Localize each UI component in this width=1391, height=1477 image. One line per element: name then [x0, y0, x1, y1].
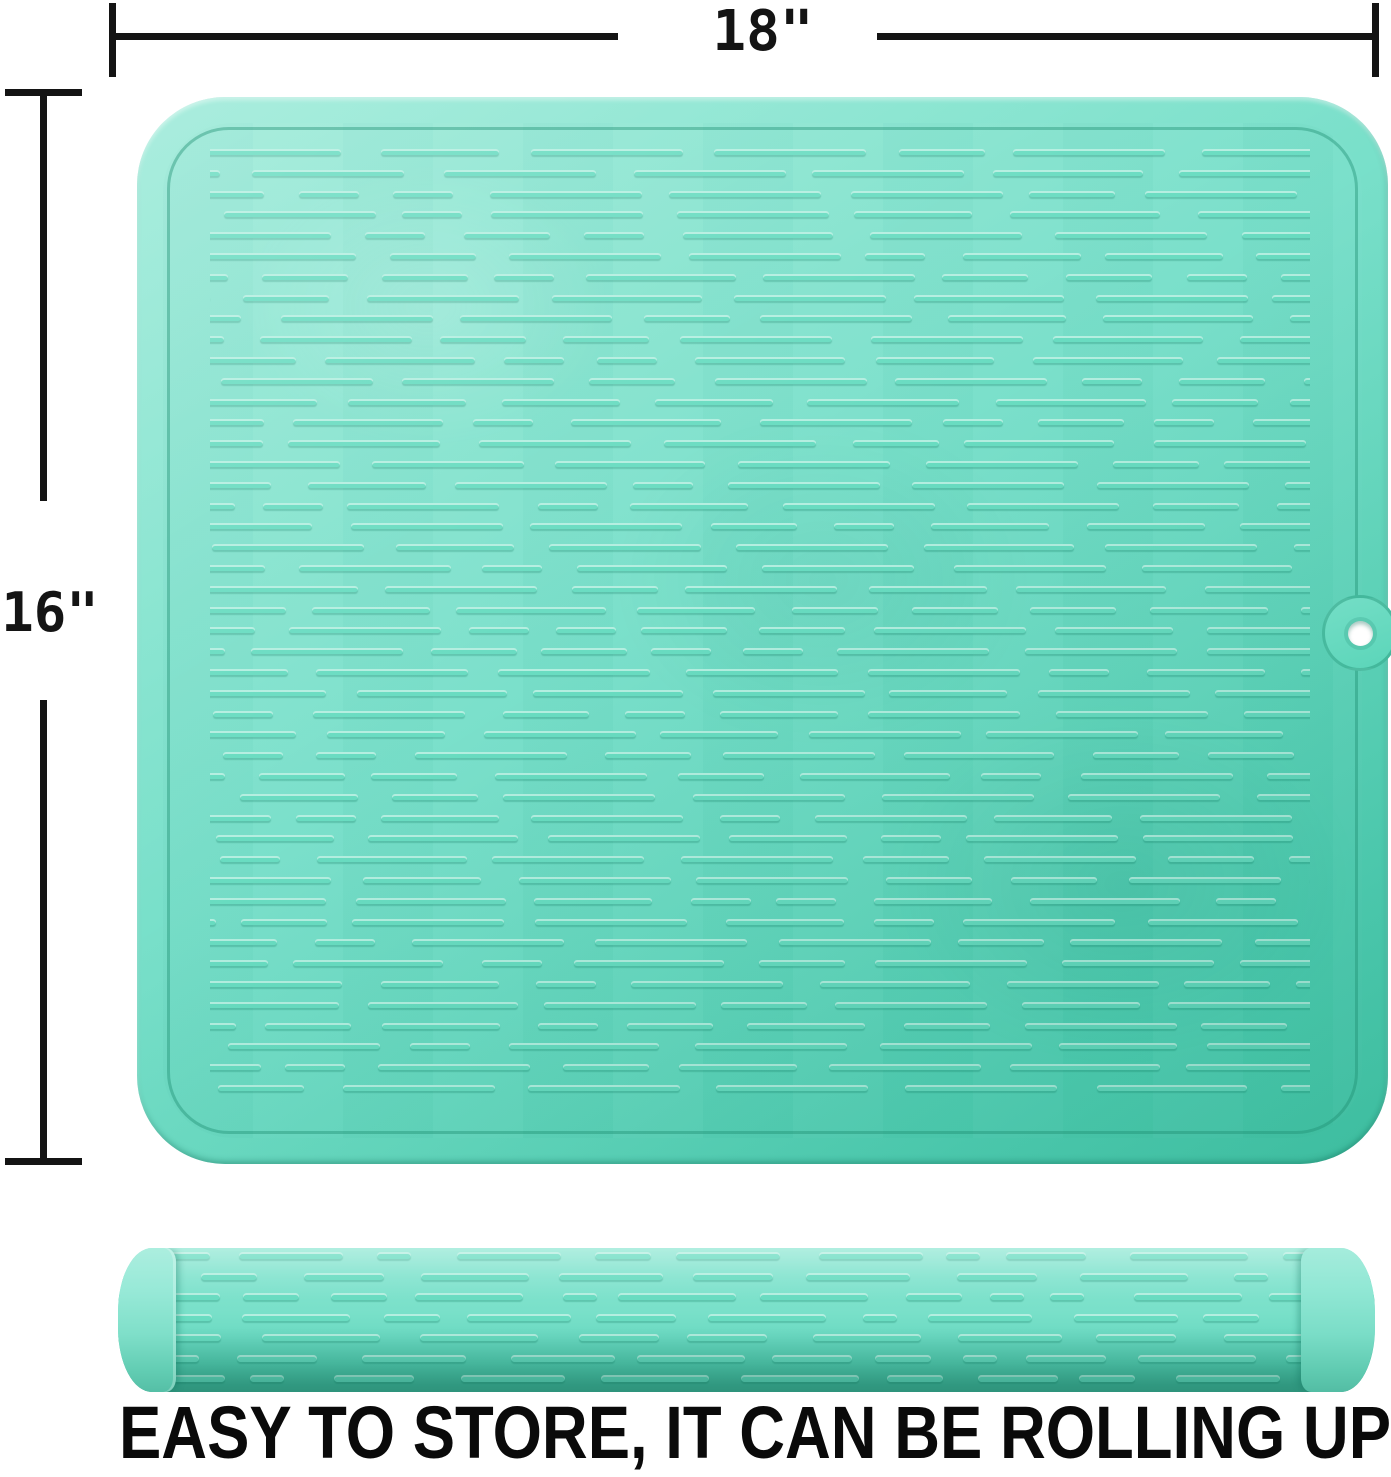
ridge — [596, 1314, 676, 1321]
ridge — [563, 1293, 597, 1300]
ridge — [926, 461, 1078, 467]
ridge — [854, 211, 972, 217]
ridge — [210, 773, 225, 779]
ridge — [865, 253, 925, 259]
ridge — [1224, 461, 1310, 467]
ridge — [502, 399, 620, 405]
ridge — [676, 1252, 780, 1259]
ridge — [1056, 711, 1208, 717]
ridge — [334, 1375, 414, 1382]
ridge — [1281, 274, 1310, 280]
ridge — [210, 877, 331, 883]
ridge — [420, 1334, 538, 1341]
ridge — [792, 607, 878, 613]
ridge — [331, 1293, 387, 1300]
ridge — [210, 939, 277, 945]
ridge — [597, 357, 657, 363]
ridge — [1079, 1375, 1135, 1382]
ridge — [1187, 274, 1247, 280]
ridge — [696, 877, 848, 883]
ridge — [958, 939, 1044, 945]
ridge — [559, 1273, 663, 1280]
ridge — [978, 1375, 1058, 1382]
ridge — [967, 503, 1119, 509]
rolled-mat — [118, 1248, 1375, 1392]
ridge — [473, 419, 533, 425]
ridge — [552, 295, 702, 301]
ridge — [689, 253, 841, 259]
ridge — [1097, 482, 1249, 488]
ridge — [708, 1314, 826, 1321]
ridge — [681, 856, 833, 862]
ridge — [747, 1023, 865, 1029]
ridge — [586, 274, 736, 280]
width-dimension-line-right — [877, 33, 1376, 40]
ridge — [963, 919, 1115, 925]
ridge — [210, 981, 342, 987]
ridge — [942, 274, 1028, 280]
ridge — [887, 1375, 943, 1382]
ridge — [262, 274, 348, 280]
ridge — [210, 482, 271, 488]
ridge — [1272, 295, 1310, 301]
ridge — [402, 211, 462, 217]
ridge — [881, 835, 941, 841]
ridge — [265, 1023, 351, 1029]
ridge — [210, 960, 268, 966]
ridge — [1277, 503, 1310, 509]
ridge — [396, 544, 514, 550]
ridge — [467, 1314, 571, 1321]
ridge — [250, 1375, 284, 1382]
ridge — [1301, 669, 1310, 675]
ridge — [351, 523, 503, 529]
ridge — [820, 981, 970, 987]
ridge — [726, 919, 844, 925]
ridge — [809, 731, 961, 737]
ridge — [240, 794, 358, 800]
ridge — [456, 607, 606, 613]
hanging-hole-tab — [1322, 595, 1391, 671]
ridge — [1154, 419, 1214, 425]
ridge — [1207, 1043, 1310, 1049]
rolled-mat-right-cap — [1301, 1248, 1375, 1392]
ridge — [1055, 232, 1207, 238]
ridge — [348, 399, 466, 405]
ridge — [1290, 315, 1310, 321]
ridge — [763, 274, 915, 280]
ridge — [993, 170, 1143, 176]
width-dimension-line-left — [112, 33, 618, 40]
ridge — [776, 898, 836, 904]
ridge — [464, 232, 550, 238]
ridge — [491, 211, 643, 217]
ridge — [504, 357, 564, 363]
ridge — [381, 149, 499, 155]
ridge — [210, 690, 326, 696]
ridge — [1134, 1293, 1242, 1300]
ridge — [347, 503, 499, 509]
ridge — [693, 1273, 773, 1280]
ridge — [874, 919, 934, 925]
ridge — [1186, 1064, 1310, 1070]
ridge — [210, 149, 341, 155]
ridge — [212, 544, 364, 550]
ridge — [1105, 253, 1223, 259]
ridge — [990, 1293, 1024, 1300]
ridge — [1257, 794, 1310, 800]
ridge — [210, 461, 340, 467]
ridge — [966, 835, 1118, 841]
ridge — [1205, 586, 1310, 592]
ridge — [243, 1293, 299, 1300]
ridge — [484, 731, 636, 737]
ridge — [1074, 1314, 1178, 1321]
ridge — [868, 669, 1020, 675]
ridge — [1022, 1002, 1140, 1008]
ridge — [577, 565, 727, 571]
ridge — [1140, 815, 1292, 821]
ridge — [807, 399, 959, 405]
ridge — [759, 960, 845, 966]
ridge — [469, 627, 529, 633]
ridge — [210, 627, 255, 633]
ridge — [362, 1355, 466, 1362]
ridge — [958, 1334, 1062, 1341]
ridge — [595, 939, 747, 945]
ridge — [511, 1355, 615, 1362]
ridge — [874, 627, 1026, 633]
ridge — [729, 835, 847, 841]
ridge — [299, 191, 359, 197]
ridge — [723, 752, 875, 758]
drying-mat — [137, 97, 1388, 1164]
ridge — [363, 877, 481, 883]
ridge — [243, 295, 329, 301]
ridge — [242, 1314, 350, 1321]
ridge — [531, 149, 683, 155]
ridge — [1296, 981, 1310, 987]
ridge — [1216, 898, 1276, 904]
ridge — [221, 378, 373, 384]
ridge — [713, 690, 865, 696]
ridge — [627, 1023, 713, 1029]
ridge — [381, 981, 499, 987]
ridge — [1081, 773, 1233, 779]
ridge — [954, 565, 1106, 571]
ridge — [210, 503, 235, 509]
ridge — [1096, 295, 1248, 301]
ridge — [299, 565, 451, 571]
ridge — [851, 191, 1003, 197]
ridge — [308, 482, 426, 488]
ridge — [220, 856, 280, 862]
ridge — [677, 211, 829, 217]
ridge — [1025, 1023, 1177, 1029]
ridge — [381, 815, 499, 821]
ridge — [876, 357, 994, 363]
ridge — [630, 503, 748, 509]
ridge — [563, 1064, 649, 1070]
ridge — [693, 794, 845, 800]
ridge — [869, 586, 987, 592]
ridge — [1053, 336, 1203, 342]
ridge — [964, 440, 1114, 446]
ridge — [579, 1334, 659, 1341]
ridge — [210, 253, 356, 259]
ridge — [555, 461, 705, 467]
ridge — [874, 898, 992, 904]
ridge — [210, 419, 264, 425]
rolled-mat-left-cap — [118, 1248, 176, 1392]
ridge — [1147, 669, 1265, 675]
ridge — [479, 440, 631, 446]
ridge — [762, 565, 914, 571]
ridge — [210, 336, 224, 342]
ridge — [815, 815, 967, 821]
ridge — [210, 315, 241, 321]
ridge — [889, 690, 1007, 696]
ridge — [1217, 357, 1310, 363]
ridge — [1049, 669, 1109, 675]
ridge — [1010, 1064, 1160, 1070]
ridge — [262, 1334, 380, 1341]
ridge — [289, 627, 441, 633]
ridge — [352, 919, 504, 925]
ridge — [1208, 752, 1294, 758]
ridge — [237, 1355, 317, 1362]
ridge — [410, 1043, 470, 1049]
ridge — [1062, 960, 1214, 966]
ridge — [691, 898, 751, 904]
ridge — [1025, 648, 1177, 654]
ridge — [1029, 191, 1115, 197]
ridge — [741, 1375, 859, 1382]
ridge — [1038, 419, 1124, 425]
ridge — [680, 336, 832, 342]
width-dimension-tick-left — [109, 3, 116, 77]
rolled-mat-ridge-texture — [174, 1252, 1324, 1388]
ridge — [1285, 482, 1310, 488]
ridge — [783, 503, 935, 509]
ridge — [210, 399, 317, 405]
ridge — [317, 856, 467, 862]
ridge — [440, 336, 526, 342]
ridge — [1267, 773, 1310, 779]
ridge — [1201, 1023, 1287, 1029]
ridge — [912, 482, 1064, 488]
ridge — [1150, 607, 1268, 613]
ridge — [210, 898, 326, 904]
ridge — [393, 191, 453, 197]
ridge — [368, 1002, 518, 1008]
ridge — [1010, 211, 1160, 217]
ridge — [1256, 253, 1310, 259]
ridge — [1068, 794, 1220, 800]
ridge — [1294, 544, 1310, 550]
ridge — [519, 877, 671, 883]
ridge — [357, 690, 507, 696]
ridge — [800, 773, 950, 779]
ridge — [899, 149, 985, 155]
ridge — [871, 336, 1023, 342]
ridge — [981, 773, 1041, 779]
ridge — [241, 919, 327, 925]
ridge — [210, 357, 296, 363]
ridge — [687, 1334, 767, 1341]
ridge — [1113, 461, 1199, 467]
ridge — [293, 960, 443, 966]
ridge — [996, 399, 1146, 405]
ridge — [1207, 648, 1310, 654]
ridge — [1130, 1252, 1248, 1259]
ridge — [535, 919, 687, 925]
ridge — [210, 1023, 236, 1029]
ridge — [385, 586, 537, 592]
ridge — [210, 232, 331, 238]
ridge — [779, 939, 931, 945]
hanging-hole — [1348, 621, 1373, 646]
caption: EASY TO STORE, IT CAN BE ROLLING UP — [0, 1396, 1391, 1476]
ridge — [637, 607, 755, 613]
ridge — [210, 919, 216, 925]
ridge — [372, 461, 524, 467]
ridge — [534, 898, 652, 904]
ridge — [210, 565, 265, 571]
ridge — [572, 586, 658, 592]
ridge — [819, 1252, 923, 1259]
ridge — [293, 419, 443, 425]
ridge — [1006, 1252, 1086, 1259]
ridge — [1240, 523, 1310, 529]
ridge — [316, 752, 376, 758]
ridge — [460, 315, 612, 321]
ridge — [1281, 1085, 1310, 1091]
ridge — [1154, 440, 1306, 446]
ridge — [1168, 856, 1254, 862]
ridge — [210, 170, 220, 176]
ridge — [367, 295, 519, 301]
ridge — [210, 669, 288, 675]
ridge — [760, 315, 912, 321]
ridge — [1301, 607, 1310, 613]
ridge — [378, 1064, 530, 1070]
ridge — [228, 1043, 380, 1049]
ridge — [444, 170, 596, 176]
ridge — [595, 1252, 651, 1259]
ridge — [863, 856, 949, 862]
ridge — [541, 648, 627, 654]
ridge — [806, 1273, 910, 1280]
ridge — [904, 752, 1054, 758]
ridge — [259, 773, 345, 779]
ridge — [625, 711, 685, 717]
ridge — [1026, 1355, 1106, 1362]
ridge — [1066, 274, 1152, 280]
mat-ridge-texture — [210, 149, 1310, 1107]
ridge — [563, 336, 649, 342]
ridge — [760, 1293, 868, 1300]
ridge — [556, 627, 616, 633]
ridge — [371, 773, 457, 779]
ridge — [365, 232, 425, 238]
ridge — [421, 1273, 529, 1280]
ridge — [210, 607, 286, 613]
ridge — [1080, 1273, 1188, 1280]
ridge — [538, 503, 598, 509]
ridge — [1030, 607, 1116, 613]
ridge — [720, 815, 780, 821]
ridge — [263, 503, 323, 509]
ridge — [875, 960, 1027, 966]
ridge — [834, 523, 894, 529]
ridge — [728, 482, 880, 488]
ridge — [1096, 1334, 1176, 1341]
ridge — [812, 170, 964, 176]
ridge — [528, 1085, 680, 1091]
ridge — [734, 295, 886, 301]
ridge — [678, 773, 764, 779]
ridge — [1168, 1002, 1310, 1008]
ridge — [1304, 378, 1310, 384]
ridge — [1207, 627, 1310, 633]
ridge — [651, 648, 711, 654]
ridge — [928, 1314, 1032, 1321]
ridge — [986, 731, 1138, 737]
ridge — [644, 315, 730, 321]
ridge — [669, 191, 821, 197]
ridge — [906, 1293, 962, 1300]
ridge — [536, 981, 596, 987]
ridge — [1234, 1273, 1268, 1280]
ridge — [509, 1043, 659, 1049]
ridge — [210, 440, 263, 446]
ridge — [924, 544, 1074, 550]
ridge — [994, 815, 1112, 821]
ridge — [548, 835, 700, 841]
ridge — [494, 274, 554, 280]
ridge — [482, 565, 542, 571]
ridge — [544, 1002, 696, 1008]
ridge — [655, 399, 773, 405]
ridge — [251, 648, 403, 654]
ridge — [1242, 232, 1310, 238]
ridge — [382, 1023, 500, 1029]
ridge — [738, 461, 890, 467]
ridge — [1030, 898, 1180, 904]
ridge — [218, 1085, 304, 1091]
ridge — [490, 191, 642, 197]
ridge — [683, 232, 833, 238]
ridge — [720, 711, 838, 717]
ridge — [531, 815, 683, 821]
ridge — [870, 232, 1022, 238]
ridge — [498, 669, 650, 675]
width-dimension-tick-right — [1372, 3, 1379, 77]
height-dimension-line-lower — [40, 700, 47, 1162]
ridge — [1244, 711, 1310, 717]
ridge — [415, 1293, 523, 1300]
ridge — [210, 1064, 261, 1070]
ridge — [931, 523, 1049, 529]
product-dimension-image: 18" 16" EASY TO STORE, IT CAN BE ROLLING… — [0, 0, 1391, 1477]
ridge — [1103, 315, 1253, 321]
ridge — [1038, 690, 1190, 696]
ridge — [455, 482, 607, 488]
ridge — [239, 1252, 343, 1259]
ridge — [618, 1293, 736, 1300]
ridge — [963, 253, 1081, 259]
